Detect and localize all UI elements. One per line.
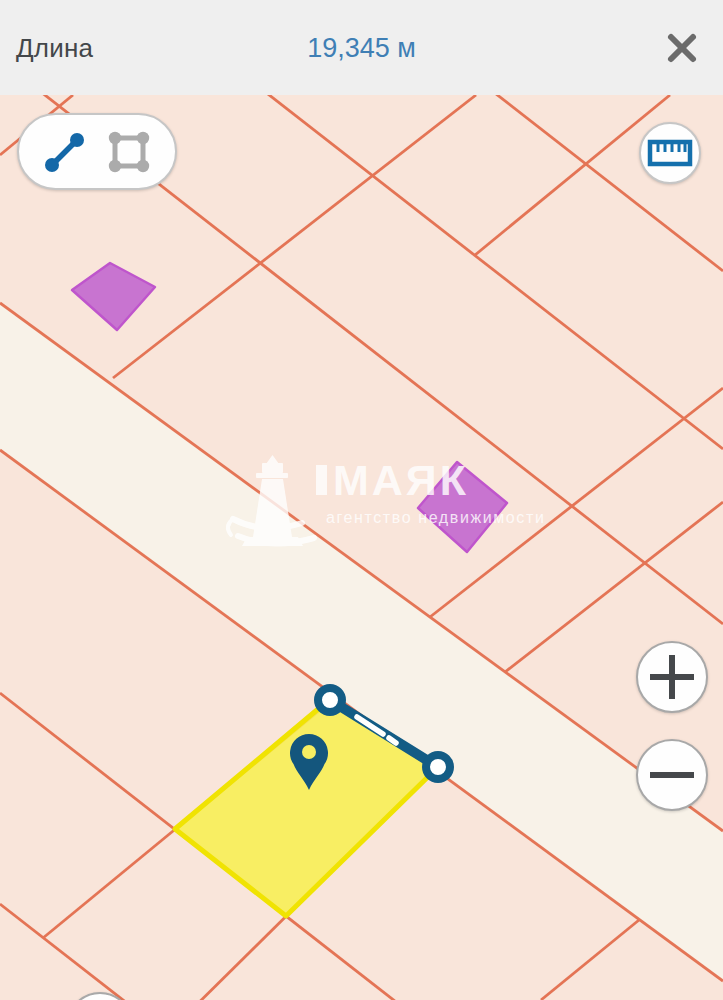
polygon-measure-icon <box>104 127 154 177</box>
measured-length-value: 19,345 м <box>307 32 416 63</box>
measure-area-tool-button[interactable] <box>103 126 155 178</box>
measure-header: Длина 19,345 м <box>0 0 723 95</box>
measure-point-1[interactable] <box>318 688 342 712</box>
measure-line-tool-button[interactable] <box>39 126 91 178</box>
close-button[interactable] <box>659 25 705 71</box>
measure-point-2[interactable] <box>426 755 450 779</box>
close-icon <box>665 31 699 65</box>
measure-tool-screen: Длина 19,345 м <box>0 0 723 1000</box>
map-canvas[interactable]: МАЯК агентство недвижимости <box>0 95 723 1000</box>
zoom-out-button[interactable] <box>636 739 708 811</box>
minus-icon <box>646 749 698 801</box>
measure-tool-switcher <box>17 113 177 190</box>
ruler-button[interactable] <box>639 122 701 184</box>
plus-icon <box>646 651 698 703</box>
watermark-subtitle: агентство недвижимости <box>326 509 545 526</box>
zoom-in-button[interactable] <box>636 641 708 713</box>
ruler-icon <box>647 135 693 171</box>
measure-mode-label: Длина <box>16 32 93 63</box>
line-measure-icon <box>41 128 89 176</box>
watermark-brand: МАЯК <box>333 456 469 504</box>
cadastral-map: МАЯК агентство недвижимости <box>0 95 723 1000</box>
